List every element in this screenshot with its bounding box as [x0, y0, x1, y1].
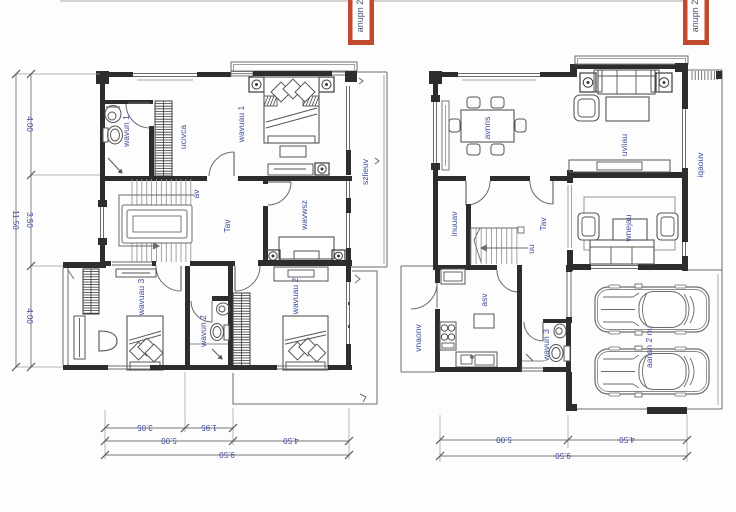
svg-text:wavuau 3: wavuau 3 — [136, 279, 146, 317]
svg-text:9.50: 9.50 — [555, 451, 571, 460]
svg-text:11.50: 11.50 — [11, 210, 20, 230]
svg-text:5.00: 5.00 — [161, 436, 177, 445]
svg-text:3.50: 3.50 — [25, 212, 34, 228]
svg-text:Tav: Tav — [538, 217, 548, 231]
svg-text:4.00: 4.00 — [25, 116, 34, 132]
svg-text:wavun 3: wavun 3 — [541, 329, 551, 362]
svg-text:av: av — [191, 189, 201, 199]
svg-text:uu: uu — [526, 244, 536, 254]
svg-text:szlieuv: szlieuv — [360, 158, 370, 185]
svg-text:wavun 2: wavun 2 — [198, 315, 208, 348]
svg-text:5.00: 5.00 — [496, 435, 512, 444]
svg-text:wavwsz: wavwsz — [299, 200, 309, 231]
svg-text:3.05: 3.05 — [137, 423, 153, 432]
svg-text:wavuau 2: wavuau 2 — [290, 278, 300, 316]
svg-text:uviiau: uviiau — [619, 134, 629, 156]
svg-text:anupn 2: anupn 2 — [355, 0, 365, 32]
svg-text:9.50: 9.50 — [219, 450, 235, 459]
svg-text:vnaonv: vnaonv — [413, 324, 423, 352]
svg-text:wavuau 1: wavuau 1 — [236, 106, 246, 144]
svg-text:anupn 2: anupn 2 — [690, 0, 700, 32]
svg-text:asv: asv — [479, 293, 489, 307]
svg-text:wnejau: wnejau — [623, 214, 633, 242]
svg-text:iqaouv: iqaouv — [695, 152, 705, 178]
svg-text:wavun 1: wavun 1 — [121, 115, 131, 148]
svg-text:Tav: Tav — [222, 219, 232, 233]
svg-text:aansn 2 nu: aansn 2 nu — [644, 326, 654, 368]
svg-text:4.00: 4.00 — [25, 308, 34, 324]
svg-text:inuuav: inuuav — [449, 211, 459, 237]
svg-text:4.50: 4.50 — [283, 436, 299, 445]
svg-text:4.50: 4.50 — [619, 435, 635, 444]
svg-text:ucivca: ucivca — [178, 125, 188, 149]
svg-text:1.95: 1.95 — [201, 423, 217, 432]
svg-text:avnns: avnns — [482, 117, 492, 140]
